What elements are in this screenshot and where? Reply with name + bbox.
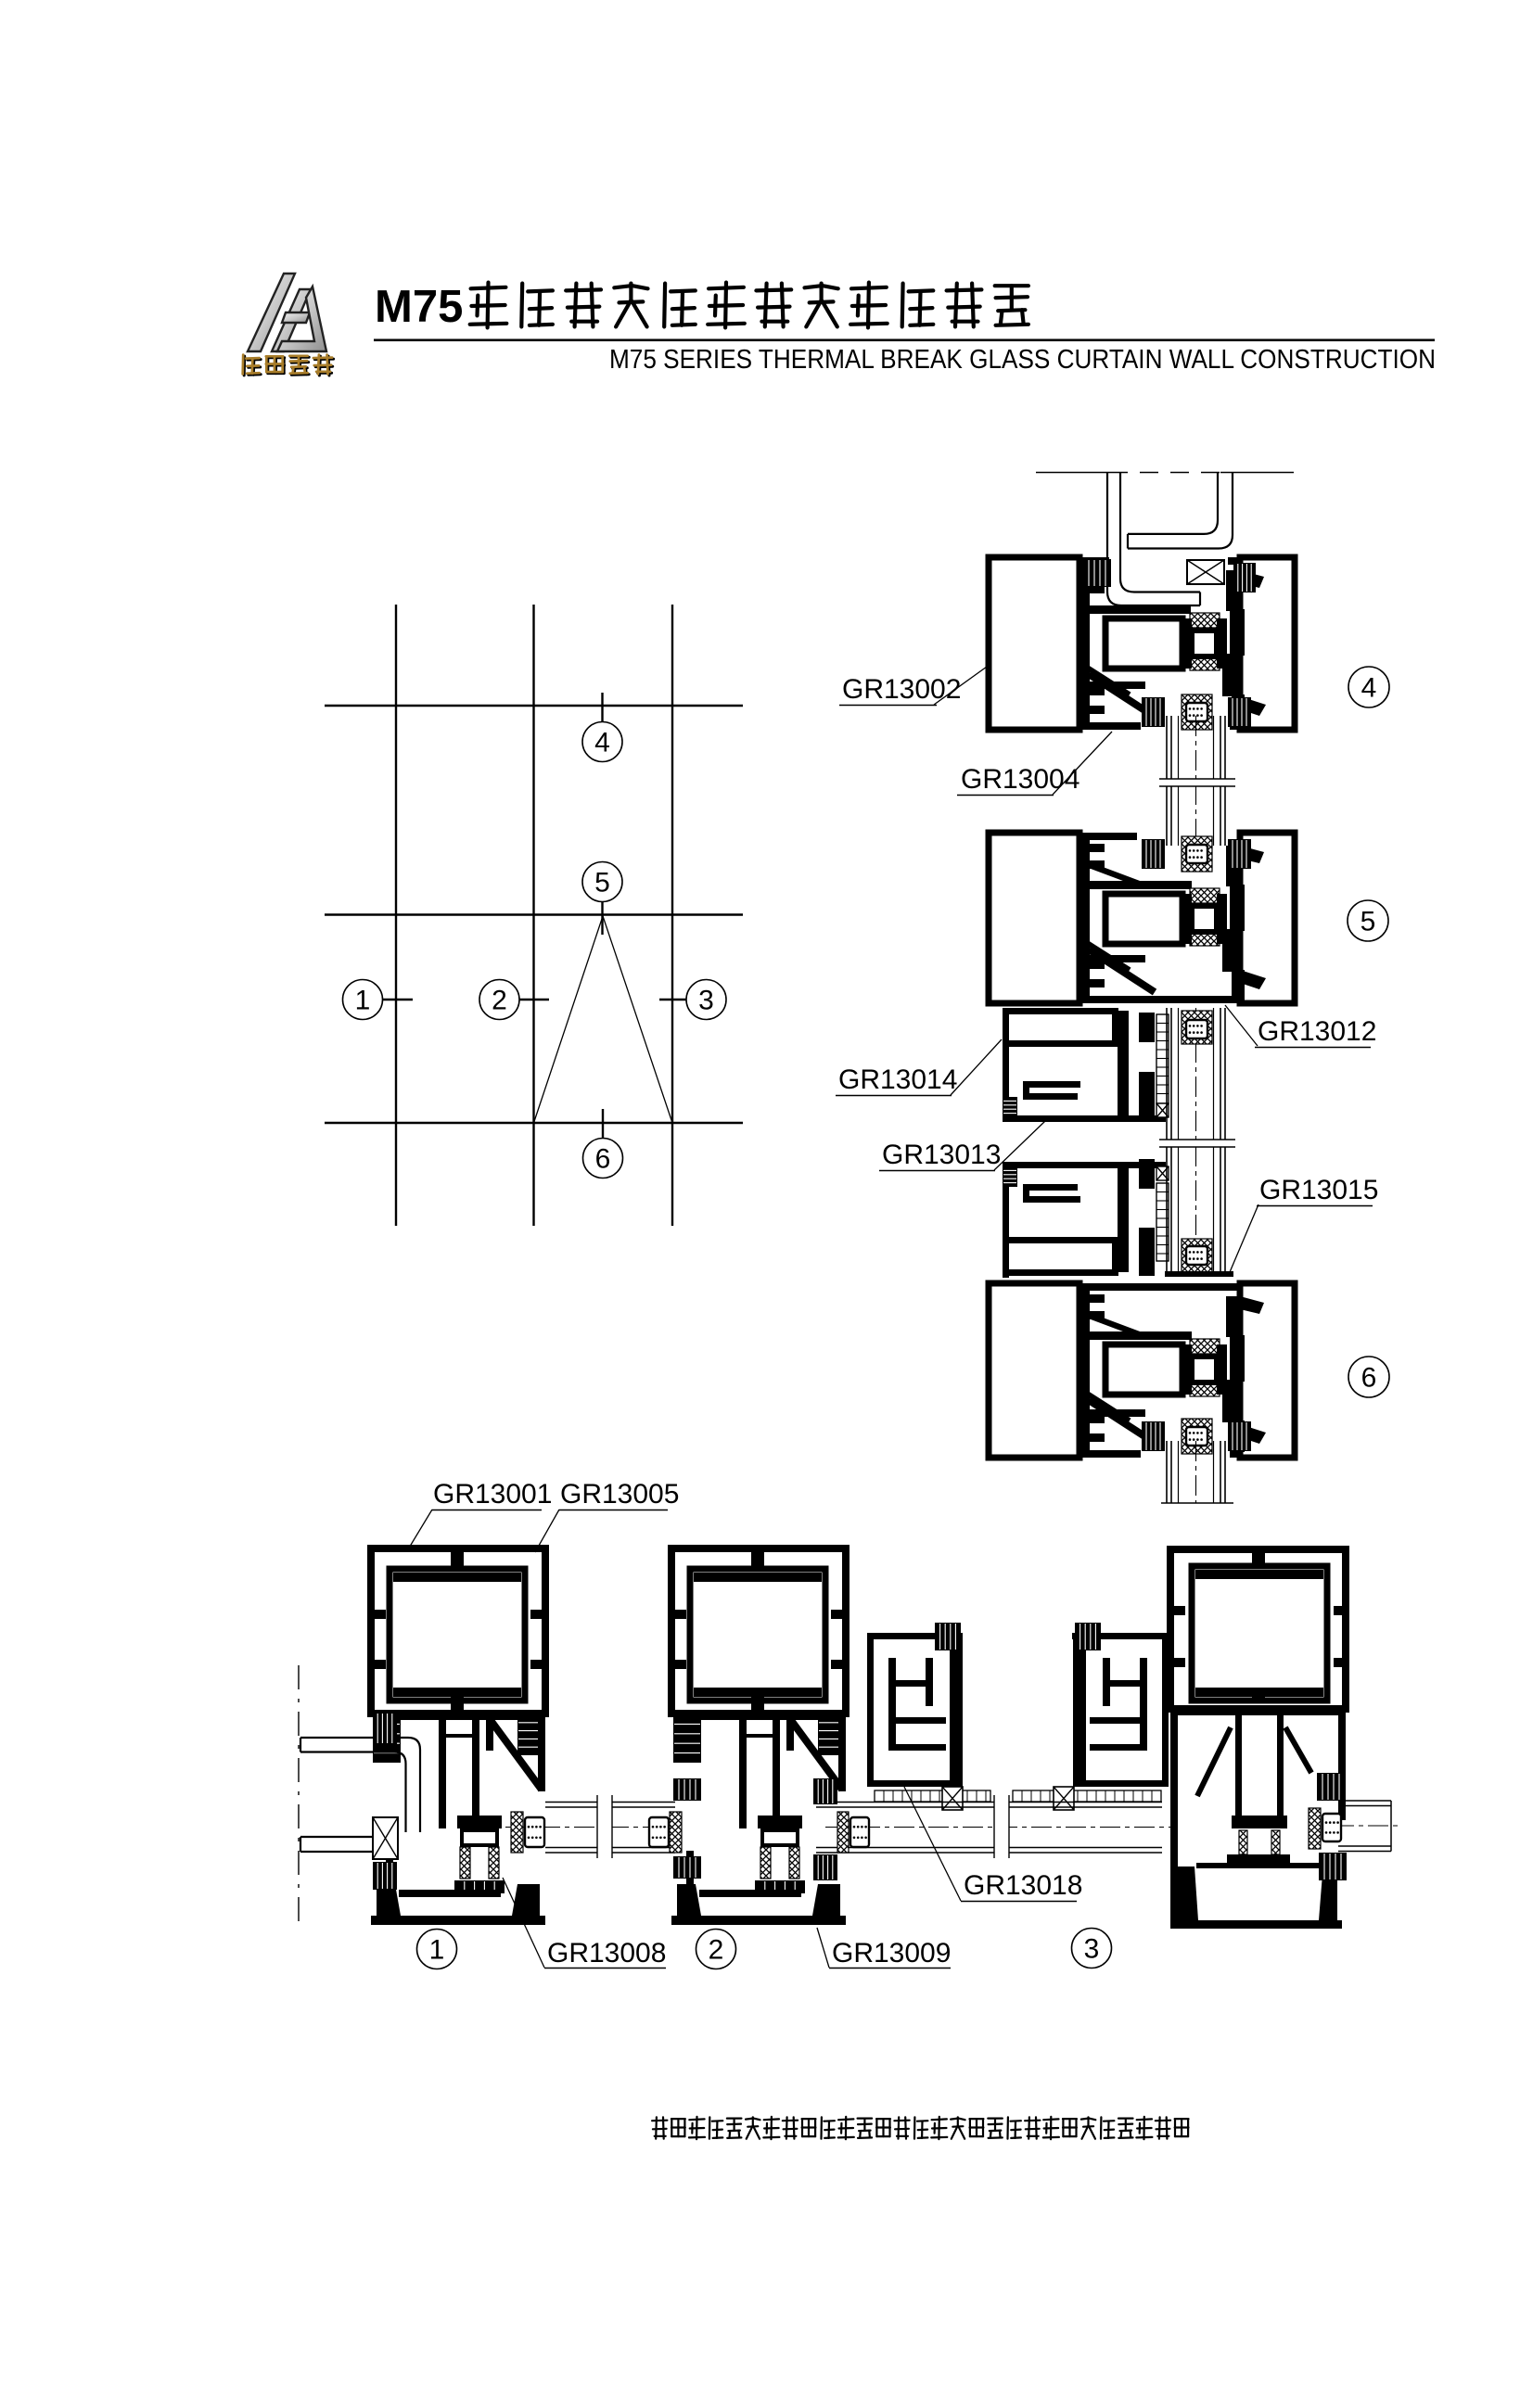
svg-text:1: 1	[355, 986, 371, 1016]
svg-text:2: 2	[709, 1935, 724, 1966]
svg-text:3: 3	[698, 986, 714, 1016]
svg-text:4: 4	[594, 728, 610, 758]
svg-text:M75 SERIES THERMAL BREAK GLASS: M75 SERIES THERMAL BREAK GLASS CURTAIN W…	[609, 345, 1436, 375]
svg-text:5: 5	[1361, 907, 1376, 937]
svg-text:GR13005: GR13005	[560, 1479, 679, 1510]
svg-text:1: 1	[429, 1935, 445, 1966]
svg-text:GR13004: GR13004	[961, 764, 1079, 795]
svg-text:3: 3	[1084, 1934, 1100, 1965]
svg-text:M75: M75	[375, 282, 463, 332]
svg-text:6: 6	[595, 1144, 611, 1175]
svg-text:4: 4	[1361, 673, 1377, 704]
svg-text:GR13018: GR13018	[964, 1870, 1082, 1901]
svg-text:GR13009: GR13009	[832, 1938, 951, 1968]
svg-text:5: 5	[594, 868, 610, 898]
svg-text:GR13002: GR13002	[842, 674, 961, 705]
svg-text:GR13014: GR13014	[838, 1064, 957, 1095]
svg-text:GR13015: GR13015	[1259, 1175, 1378, 1205]
svg-text:GR13012: GR13012	[1258, 1016, 1376, 1047]
svg-text:GR13001: GR13001	[433, 1479, 552, 1510]
svg-text:6: 6	[1361, 1363, 1377, 1394]
svg-text:2: 2	[492, 986, 507, 1016]
svg-text:GR13008: GR13008	[547, 1938, 666, 1968]
svg-text:GR13013: GR13013	[882, 1140, 1001, 1170]
